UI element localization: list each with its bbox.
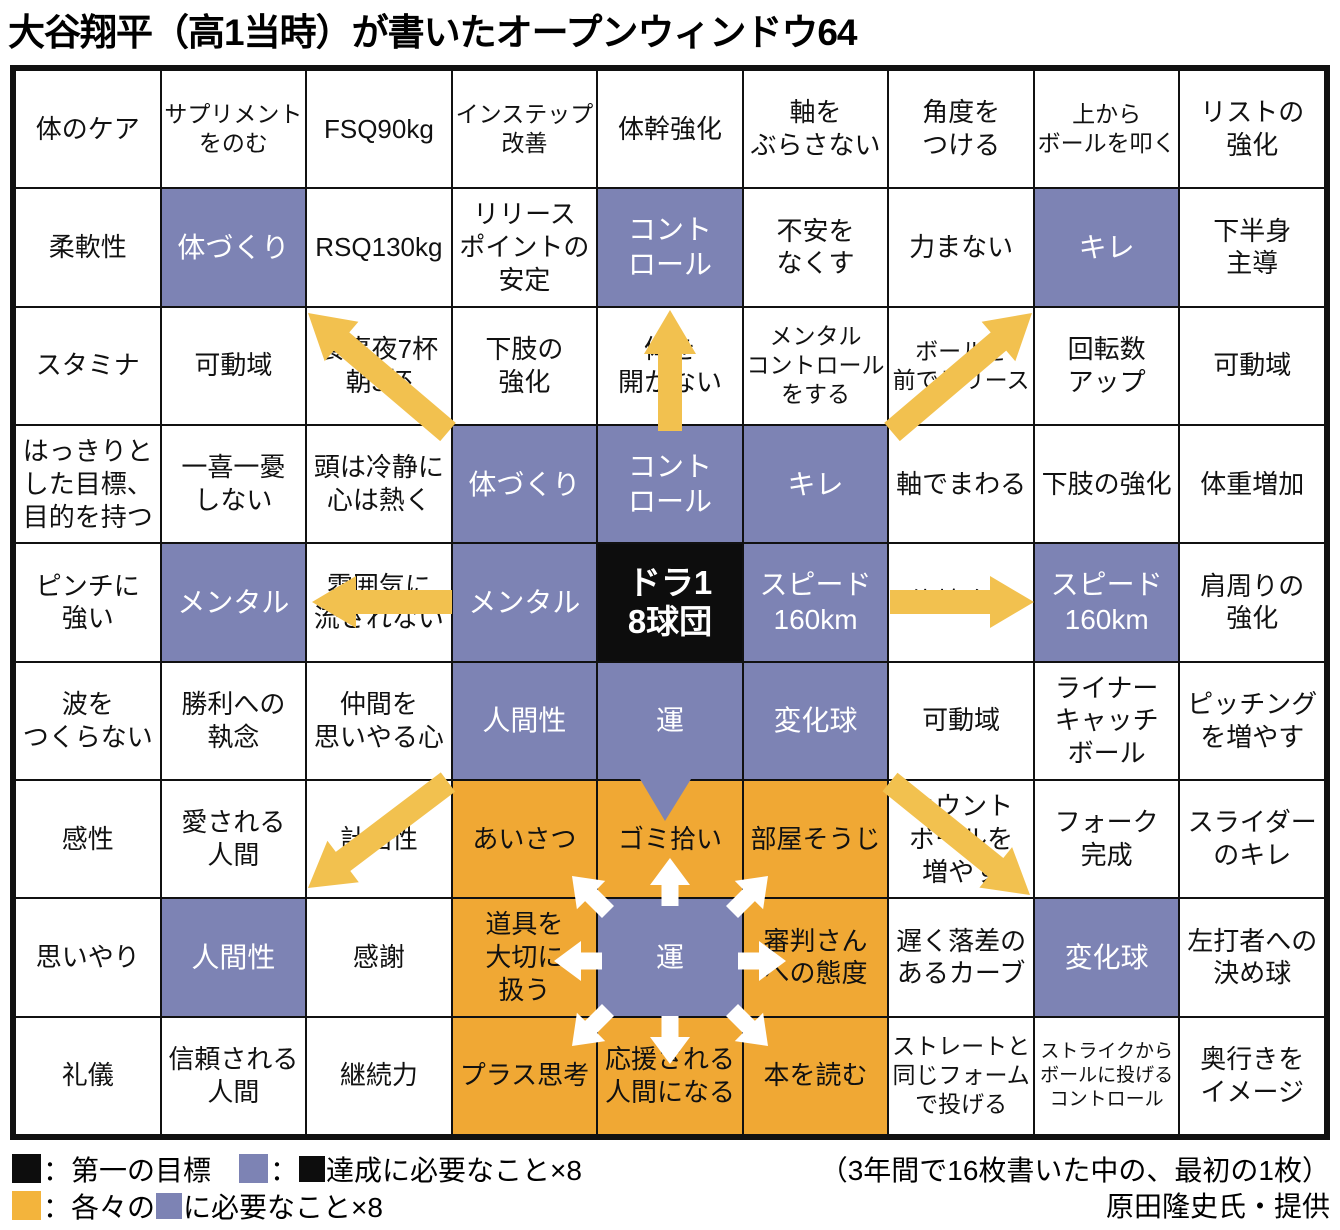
- grid-cell: 体幹強化: [889, 544, 1033, 660]
- grid-cell: 体幹強化: [598, 71, 742, 187]
- grid-cell: あいさつ: [453, 781, 597, 897]
- grid-cell: 下半身 主導: [1180, 189, 1324, 305]
- grid-cell: 波を つくらない: [16, 663, 160, 779]
- grid-cell: RSQ130kg: [307, 189, 451, 305]
- grid-cell: ストレートと 同じフォーム で投げる: [889, 1018, 1033, 1134]
- legend-text: に必要なこと×8: [183, 1186, 383, 1226]
- mandala-grid: 体のケアサプリメント をのむFSQ90kgインステップ 改善体幹強化軸を ぶらさ…: [10, 65, 1330, 1140]
- credit-line-2: 原田隆史氏・提供: [820, 1189, 1330, 1225]
- purple-swatch: [239, 1154, 268, 1183]
- grid-cell: 思いやり: [16, 899, 160, 1015]
- legend: ：第一の目標：達成に必要なこと×8：各々のに必要なこと×8: [10, 1150, 582, 1224]
- grid-cell: 感性: [16, 781, 160, 897]
- grid-cell: 感謝: [307, 899, 451, 1015]
- grid-cell: インステップ 改善: [453, 71, 597, 187]
- grid-cell: ボールを 前でリリース: [889, 308, 1033, 424]
- grid-cell: 遅く落差の あるカーブ: [889, 899, 1033, 1015]
- legend-text: ：: [270, 1149, 298, 1189]
- grid-cell: キレ: [744, 426, 888, 542]
- grid-cell: 運: [598, 899, 742, 1015]
- grid-cell: 審判さん への態度: [744, 899, 888, 1015]
- grid-cell: 変化球: [1035, 899, 1179, 1015]
- grid-cell: 力まない: [889, 189, 1033, 305]
- grid-cell: ドラ1 8球団: [598, 544, 742, 660]
- grid-cell: 可動域: [889, 663, 1033, 779]
- grid-cell: 体づくり: [162, 189, 306, 305]
- grid-cell: 人間性: [453, 663, 597, 779]
- grid-cell: 本を読む: [744, 1018, 888, 1134]
- grid-cell: スピード 160km: [1035, 544, 1179, 660]
- goal-black-swatch: [299, 1156, 325, 1182]
- grid-cell: 頭は冷静に 心は熱く: [307, 426, 451, 542]
- grid-cell: 体づくり: [453, 426, 597, 542]
- page-title: 大谷翔平（高1当時）が書いたオープンウィンドウ64: [8, 2, 857, 56]
- grid-cell: リリース ポイントの 安定: [453, 189, 597, 305]
- grid-cell: 回転数 アップ: [1035, 308, 1179, 424]
- grid-cell: メンタル コントロール をする: [744, 308, 888, 424]
- grid-cell: メンタル: [453, 544, 597, 660]
- grid-cell: 軸を ぶらさない: [744, 71, 888, 187]
- credit: （3年間で16枚書いた中の、最初の1枚） 原田隆史氏・提供: [820, 1153, 1330, 1225]
- grid-cell: 軸でまわる: [889, 426, 1033, 542]
- grid-cell: 人間性: [162, 899, 306, 1015]
- purple-swatch: [156, 1193, 182, 1219]
- grid-cell: キレ: [1035, 189, 1179, 305]
- grid-cell: 体のケア: [16, 71, 160, 187]
- grid-cell: サプリメント をのむ: [162, 71, 306, 187]
- page: 大谷翔平（高1当時）が書いたオープンウィンドウ64 体のケアサプリメント をのむ…: [0, 0, 1340, 1230]
- grid-cell: 勝利への 執念: [162, 663, 306, 779]
- grid-cell: コント ロール: [598, 189, 742, 305]
- legend-text: ：各々の: [43, 1186, 155, 1226]
- grid-cell: 下肢の強化: [1035, 426, 1179, 542]
- grid-cell: スライダー のキレ: [1180, 781, 1324, 897]
- grid-cell: 雰囲気に 流されない: [307, 544, 451, 660]
- grid-cell: コント ロール: [598, 426, 742, 542]
- grid-cell: 可動域: [162, 308, 306, 424]
- grid-cell: 食事夜7杯 朝3杯: [307, 308, 451, 424]
- grid-cell: 道具を 大切に 扱う: [453, 899, 597, 1015]
- grid-cell: カウント ボールを 増やす: [889, 781, 1033, 897]
- grid-cell: 体重増加: [1180, 426, 1324, 542]
- grid-cell: 部屋そうじ: [744, 781, 888, 897]
- credit-line-1: （3年間で16枚書いた中の、最初の1枚）: [820, 1153, 1330, 1189]
- grid-cell: ライナー キャッチ ボール: [1035, 663, 1179, 779]
- grid-cell: 体を 開かない: [598, 308, 742, 424]
- grid-cell: 奥行きを イメージ: [1180, 1018, 1324, 1134]
- grid-cell: リストの 強化: [1180, 71, 1324, 187]
- grid-cell: 愛される 人間: [162, 781, 306, 897]
- grid-cell: 肩周りの 強化: [1180, 544, 1324, 660]
- grid-cell: 礼儀: [16, 1018, 160, 1134]
- grid-cell: 計画性: [307, 781, 451, 897]
- grid-cell: 不安を なくす: [744, 189, 888, 305]
- grid-cell: 運: [598, 663, 742, 779]
- grid-cell: ピッチング を増やす: [1180, 663, 1324, 779]
- legend-line-2: ：各々のに必要なこと×8: [10, 1187, 582, 1224]
- grid-cell: 下肢の 強化: [453, 308, 597, 424]
- grid-cell: 可動域: [1180, 308, 1324, 424]
- grid-cell: プラス思考: [453, 1018, 597, 1134]
- grid-cell: 柔軟性: [16, 189, 160, 305]
- legend-line-1: ：第一の目標：達成に必要なこと×8: [10, 1150, 582, 1187]
- grid-cell: 上から ボールを叩く: [1035, 71, 1179, 187]
- grid-cell: ストライクから ボールに投げる コントロール: [1035, 1018, 1179, 1134]
- goal-black-swatch: [12, 1154, 41, 1183]
- grid-cell: 左打者への 決め球: [1180, 899, 1324, 1015]
- grid-cell: 角度を つける: [889, 71, 1033, 187]
- grid-cell: ピンチに 強い: [16, 544, 160, 660]
- grid-cell: スタミナ: [16, 308, 160, 424]
- legend-orange-swatch: [12, 1191, 41, 1220]
- grid-cell: 信頼される 人間: [162, 1018, 306, 1134]
- grid-cell: はっきりと した目標、 目的を持つ: [16, 426, 160, 542]
- grid-cell: フォーク 完成: [1035, 781, 1179, 897]
- grid-cell: 応援される 人間になる: [598, 1018, 742, 1134]
- grid-cell: 仲間を 思いやる心: [307, 663, 451, 779]
- grid-cell: 継続力: [307, 1018, 451, 1134]
- grid-cell: 変化球: [744, 663, 888, 779]
- legend-text: 達成に必要なこと×8: [326, 1149, 582, 1189]
- grid-cell: FSQ90kg: [307, 71, 451, 187]
- grid-cell: ゴミ拾い: [598, 781, 742, 897]
- grid-cell: 一喜一憂 しない: [162, 426, 306, 542]
- legend-text: ：第一の目標: [43, 1149, 211, 1189]
- grid-cell: メンタル: [162, 544, 306, 660]
- grid-cell: スピード 160km: [744, 544, 888, 660]
